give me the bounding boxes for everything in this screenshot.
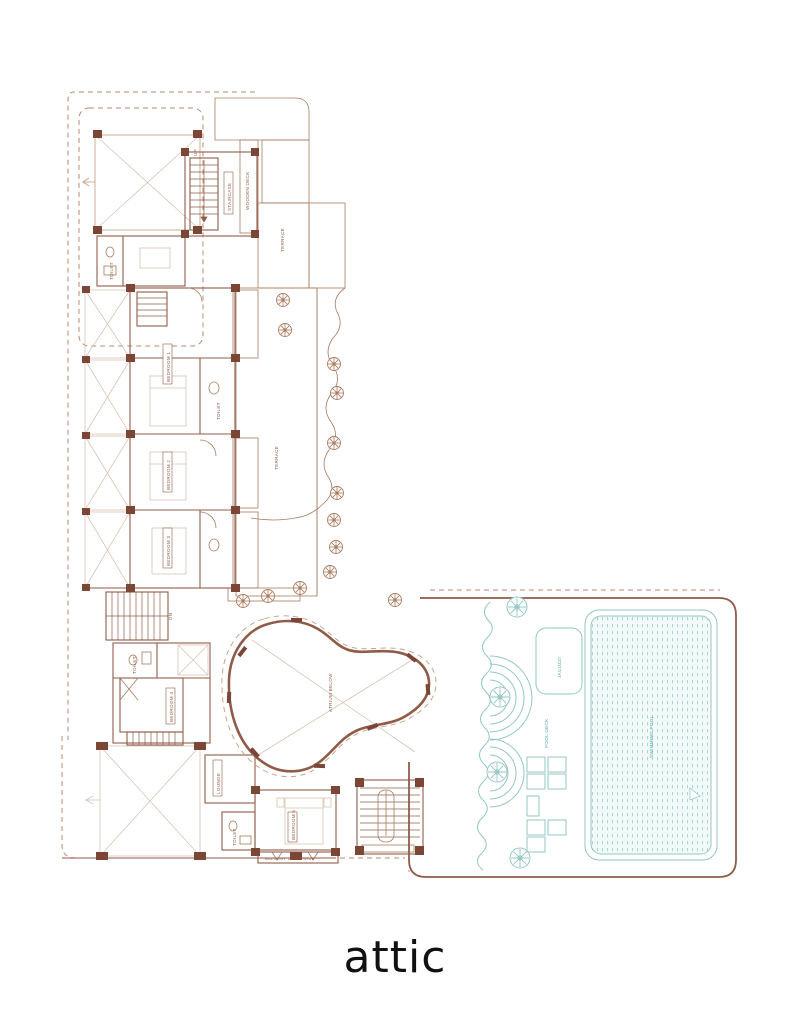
bedroom1-label: BEDROOM 1 — [166, 352, 171, 382]
attic-floor-plan-page: TERRACE TERRACE WOODEN DECK — [0, 0, 791, 1024]
pool-terrace: JACUZZI POOL DECK SWIMMING POOL — [409, 597, 736, 877]
floor-caption: attic — [295, 932, 495, 983]
up-label: UP — [193, 149, 198, 156]
planter-edge — [237, 288, 402, 608]
pool-loungers — [527, 757, 566, 852]
dn-label: DN — [168, 613, 173, 620]
bedroom5-label: BEDROOM 5 — [291, 810, 296, 840]
swimming-pool: SWIMMING POOL — [585, 610, 717, 860]
toilet-label-4: TOILET — [232, 828, 237, 846]
terrace-label: TERRACE — [280, 228, 285, 252]
deck-strips: WOODEN DECK — [228, 140, 300, 601]
atrium-label: ATRIUM BELOW — [328, 673, 333, 712]
terrace-label-2: TERRACE — [274, 446, 279, 470]
pool-label: SWIMMING POOL — [649, 715, 654, 758]
deck-label: WOODEN DECK — [245, 171, 250, 210]
lounge-label: LOUNGE — [216, 773, 221, 794]
toilet-label-2: TOILET — [216, 402, 221, 420]
atrium-void: ATRIUM BELOW — [222, 616, 436, 777]
floor-plan-drawing: TERRACE TERRACE WOODEN DECK — [0, 0, 791, 1024]
jacuzzi-label: JACUZZI — [557, 657, 562, 678]
pooldeck-label: POOL DECK — [544, 718, 549, 748]
staircase-label: STAIRCASE — [227, 183, 232, 211]
toilet-label-3: TOILET — [132, 656, 137, 674]
bedroom2-label: BEDROOM 2 — [166, 460, 171, 490]
bedroom3-label: BEDROOM 3 — [166, 536, 171, 566]
bedroom4-label: BEDROOM 4 — [169, 692, 174, 722]
toilet-label-1: TOILET — [109, 262, 114, 280]
